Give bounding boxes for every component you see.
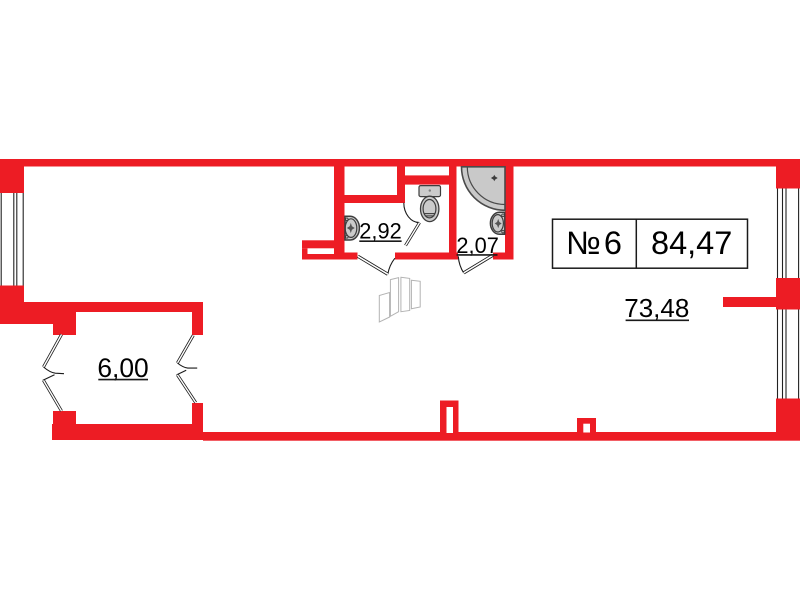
svg-text:84,47: 84,47 bbox=[651, 225, 732, 261]
svg-text:6,00: 6,00 bbox=[97, 353, 148, 383]
svg-text:73,48: 73,48 bbox=[624, 293, 689, 323]
svg-text:2,92: 2,92 bbox=[359, 219, 401, 244]
svg-text:№6: №6 bbox=[566, 225, 625, 261]
